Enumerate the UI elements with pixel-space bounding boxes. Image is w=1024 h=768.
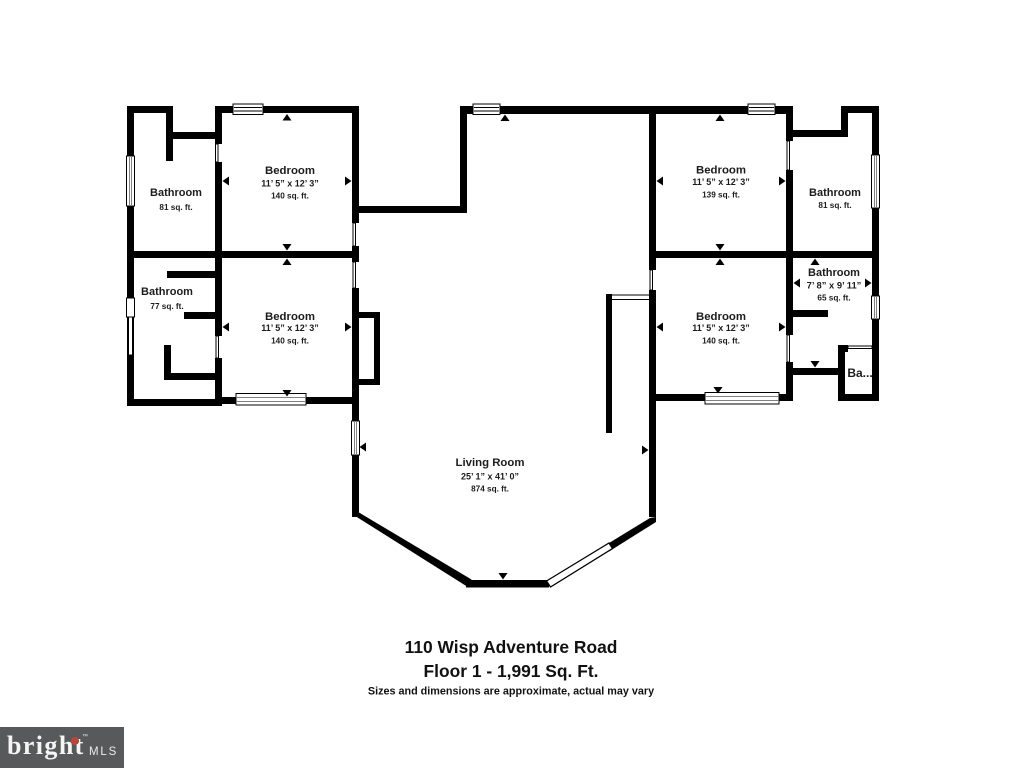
svg-text:11’ 5” x 12’ 3”: 11’ 5” x 12’ 3” xyxy=(261,179,319,189)
svg-text:Floor 1 - 1,991 Sq. Ft.: Floor 1 - 1,991 Sq. Ft. xyxy=(424,661,599,681)
svg-text:Sizes and dimensions are appro: Sizes and dimensions are approximate, ac… xyxy=(368,686,654,698)
svg-text:7’ 8” x 9’ 11”: 7’ 8” x 9’ 11” xyxy=(807,280,862,291)
svg-text:Bathroom: Bathroom xyxy=(141,286,193,298)
svg-text:Bathroom: Bathroom xyxy=(150,187,202,199)
svg-text:110 Wisp Adventure Road: 110 Wisp Adventure Road xyxy=(405,637,618,657)
svg-text:140 sq. ft.: 140 sq. ft. xyxy=(271,192,309,201)
svg-text:™: ™ xyxy=(82,733,88,740)
svg-text:140 sq. ft.: 140 sq. ft. xyxy=(702,337,740,346)
svg-text:bright: bright xyxy=(7,731,85,760)
svg-text:11’ 5” x 12’ 3”: 11’ 5” x 12’ 3” xyxy=(692,323,750,333)
svg-text:MLS: MLS xyxy=(89,746,118,758)
svg-text:Bathroom: Bathroom xyxy=(809,187,861,199)
svg-text:81 sq. ft.: 81 sq. ft. xyxy=(159,203,192,212)
svg-text:Bathroom: Bathroom xyxy=(808,267,860,279)
svg-text:65 sq. ft.: 65 sq. ft. xyxy=(817,294,850,303)
svg-text:11’ 5” x 12’ 3”: 11’ 5” x 12’ 3” xyxy=(261,323,319,333)
svg-text:Bedroom: Bedroom xyxy=(696,311,746,323)
svg-text:140 sq. ft.: 140 sq. ft. xyxy=(271,337,309,346)
svg-text:139 sq. ft.: 139 sq. ft. xyxy=(702,191,740,200)
svg-text:Bedroom: Bedroom xyxy=(696,165,746,177)
svg-text:25’ 1” x 41’ 0”: 25’ 1” x 41’ 0” xyxy=(461,472,519,482)
svg-text:Bedroom: Bedroom xyxy=(265,311,315,323)
svg-text:77 sq. ft.: 77 sq. ft. xyxy=(150,302,183,311)
svg-text:Living Room: Living Room xyxy=(456,457,525,469)
svg-text:Ba...: Ba... xyxy=(847,366,872,380)
svg-text:11’ 5” x 12’ 3”: 11’ 5” x 12’ 3” xyxy=(692,177,750,187)
svg-text:81 sq. ft.: 81 sq. ft. xyxy=(818,201,851,210)
svg-text:Bedroom: Bedroom xyxy=(265,165,315,177)
svg-text:874 sq. ft.: 874 sq. ft. xyxy=(471,485,509,494)
